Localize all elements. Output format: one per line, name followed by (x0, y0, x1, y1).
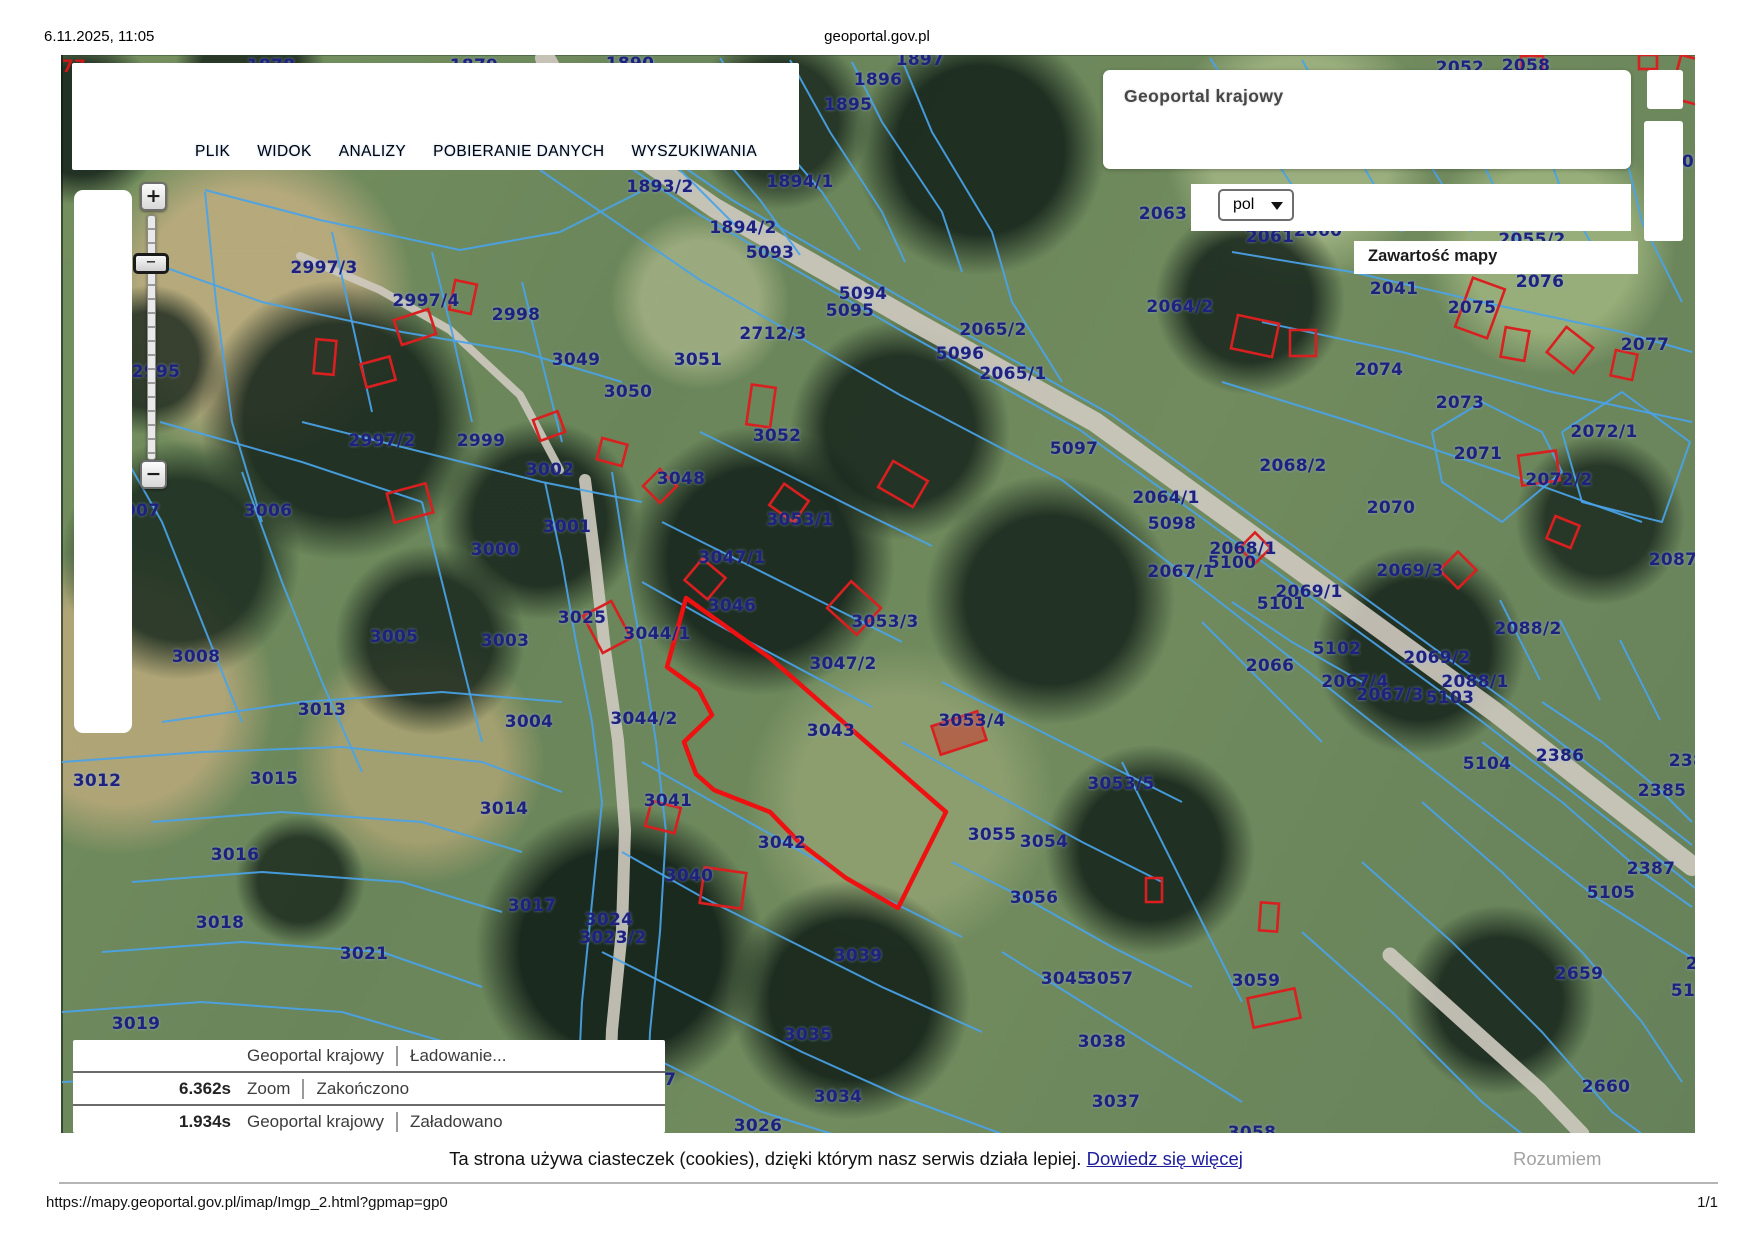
parcel-label: 3047/2 (809, 654, 876, 674)
parcel-label: 2068/2 (1259, 456, 1326, 476)
parcel-label: 5105 (1587, 883, 1636, 903)
parcel-label: 3026 (734, 1116, 783, 1133)
loading-row: 6.362s Zoom Zakończono (73, 1071, 665, 1104)
parcel-label: 5093 (746, 243, 795, 263)
parcel-label: 2072/2 (1525, 470, 1592, 490)
map-content-label: Zawartość mapy (1368, 247, 1638, 266)
parcel-label: 01 (1682, 152, 1695, 172)
parcel-label: 3044/1 (623, 624, 690, 644)
parcel-label: 3015 (250, 769, 299, 789)
parcel-label: 3047/1 (698, 548, 765, 568)
parcel-label: 2997/4 (392, 291, 459, 311)
parcel-label: 3053/3 (851, 612, 918, 632)
parcel-label: 5096 (936, 344, 985, 364)
parcel-label: 2077 (1621, 335, 1670, 355)
parcel-label: 3053/4 (938, 711, 1005, 731)
parcel-label: 3001 (543, 517, 592, 537)
parcel-label: 3016 (211, 845, 260, 865)
parcel-label: 3006 (244, 501, 293, 521)
parcel-label: 3038 (1078, 1032, 1127, 1052)
zoom-in-button[interactable]: + (140, 182, 167, 211)
parcel-label: 2069/3 (1376, 561, 1443, 581)
parcel-label: 1894/1 (766, 172, 833, 192)
parcel-label: 3049 (552, 350, 601, 370)
parcel-label: 3034 (814, 1087, 863, 1107)
parcel-label: 1893/2 (626, 177, 693, 197)
menu-item-analizy[interactable]: ANALIZY (339, 143, 406, 161)
parcel-label: 2067/1 (1147, 562, 1214, 582)
parcel-label: 2 (1686, 954, 1695, 974)
parcel-label: 2065/1 (979, 364, 1046, 384)
parcel-label: 2065/2 (959, 320, 1026, 340)
parcel-label: 5101 (1257, 594, 1306, 614)
parcel-label: 3035 (784, 1025, 833, 1045)
loading-time: 6.362s (73, 1079, 247, 1099)
parcel-label: 3051 (674, 350, 723, 370)
parcel-label: 2063 (1139, 204, 1188, 224)
parcel-label: 5103 (1426, 688, 1475, 708)
parcel-label: 3056 (1010, 888, 1059, 908)
parcel-label: 2076 (1516, 272, 1565, 292)
parcel-label: 3021 (340, 944, 389, 964)
parcel-label: 3058 (1228, 1123, 1277, 1133)
parcel-label: 2997/3 (290, 258, 357, 278)
parcel-label: 2066 (1246, 656, 1295, 676)
parcel-label: 3039 (834, 946, 883, 966)
parcel-label: 3019 (112, 1014, 161, 1034)
map-content-panel[interactable]: Zawartość mapy (1354, 241, 1638, 274)
parcel-label: 3057 (1085, 969, 1134, 989)
page-indicator: 1/1 (1697, 1194, 1718, 1211)
parcel-label: 2041 (1370, 279, 1419, 299)
parcel-label: 3004 (505, 712, 554, 732)
parcel-label: 3008 (172, 647, 221, 667)
menu-item-pobieranie-danych[interactable]: POBIERANIE DANYCH (433, 143, 604, 161)
parcel-label: 2087 (1649, 550, 1695, 570)
parcel-label: 5097 (1050, 439, 1099, 459)
parcel-label: 1896 (854, 70, 903, 90)
parcel-label: 3055 (968, 825, 1017, 845)
loading-source: Geoportal krajowy (247, 1046, 396, 1066)
map-canvas[interactable]: 18781879189077189618971895205220582997/3… (61, 55, 1695, 1133)
cookie-accept-button[interactable]: Rozumiem (1513, 1148, 1718, 1170)
loading-row: 1.934s Geoportal krajowy Załadowano (73, 1104, 665, 1133)
parcel-label: 3042 (758, 833, 807, 853)
parcel-label: 3023/2 (579, 928, 646, 948)
parcel-label: 2659 (1555, 964, 1604, 984)
parcel-label: 3050 (604, 382, 653, 402)
parcel-label: 2075 (1448, 298, 1497, 318)
parcel-label: 2997/2 (348, 431, 415, 451)
parcel-label: 2070 (1367, 498, 1416, 518)
printed-page-title: geoportal.gov.pl (0, 28, 1754, 45)
parcel-label: 2069/2 (1403, 648, 1470, 668)
parcel-label: 51 (1671, 981, 1695, 1001)
parcel-label: 3002 (526, 460, 575, 480)
parcel-label: 2088/2 (1494, 619, 1561, 639)
language-value: pol (1233, 196, 1254, 213)
zoom-slider-track[interactable] (147, 215, 156, 460)
parcel-label: 3052 (753, 426, 802, 446)
toolbar-box[interactable] (1647, 70, 1683, 109)
parcel-label: 3054 (1020, 832, 1069, 852)
parcel-label: 2064/1 (1132, 488, 1199, 508)
parcel-label: 3005 (370, 627, 419, 647)
cookie-banner: Ta strona używa ciasteczek (cookies), dz… (59, 1136, 1718, 1184)
parcel-label: 2071 (1454, 444, 1503, 464)
parcel-label: 1897 (896, 55, 945, 70)
parcel-label: 2073 (1436, 393, 1485, 413)
menu-panel: PLIK WIDOK ANALIZY POBIERANIE DANYCH WYS… (72, 63, 799, 170)
parcel-label: 3014 (480, 799, 529, 819)
parcel-label: 2067/3 (1356, 685, 1423, 705)
parcel-label: 3046 (708, 596, 757, 616)
parcel-label: 3037 (1092, 1092, 1141, 1112)
parcel-label: 2995 (132, 362, 181, 382)
loading-row: Geoportal krajowy Ładowanie... (73, 1040, 665, 1071)
loading-status: Ładowanie... (396, 1046, 506, 1066)
parcel-label: 5098 (1148, 514, 1197, 534)
parcel-label: 3059 (1232, 971, 1281, 991)
parcel-label: 3053/5 (1087, 774, 1154, 794)
parcel-label: 3024 (585, 910, 634, 930)
parcel-label: 3003 (481, 631, 530, 651)
parcel-label: 2385 (1638, 781, 1687, 801)
parcel-label: 2999 (457, 431, 506, 451)
parcel-label: 3000 (471, 540, 520, 560)
zoom-slider-handle[interactable]: − (133, 253, 169, 274)
parcel-label: 2660 (1582, 1077, 1631, 1097)
parcel-label: 3053/1 (766, 510, 833, 530)
parcel-label: 3025 (558, 608, 607, 628)
parcel-label: 1894/2 (709, 218, 776, 238)
parcel-label: 3041 (644, 791, 693, 811)
app-title-panel: Geoportal krajowy (1103, 70, 1631, 169)
loading-source: Geoportal krajowy (247, 1112, 396, 1132)
menu-bar: PLIK WIDOK ANALIZY POBIERANIE DANYCH WYS… (195, 143, 757, 161)
parcel-label: 5104 (1463, 754, 1512, 774)
parcel-label: 3012 (73, 771, 122, 791)
parcel-label: 2072/1 (1570, 422, 1637, 442)
parcel-label: 3045 (1041, 969, 1090, 989)
parcel-label: 5095 (826, 301, 875, 321)
app-title: Geoportal krajowy (1124, 86, 1631, 107)
loading-source: Zoom (247, 1079, 302, 1099)
parcel-label: 3018 (196, 913, 245, 933)
side-toolbar-box[interactable] (1644, 121, 1683, 241)
parcel-label: 2387 (1627, 859, 1676, 879)
cookie-learn-more-link[interactable]: Dowiedz się więcej (1087, 1148, 1243, 1169)
loading-status: Zakończono (302, 1079, 409, 1099)
cookie-message: Ta strona używa ciasteczek (cookies), dz… (59, 1148, 1513, 1170)
parcel-label: 5100 (1208, 553, 1257, 573)
footer-url: https://mapy.geoportal.gov.pl/imap/Imgp_… (46, 1194, 448, 1211)
chevron-down-icon (1271, 202, 1283, 210)
parcel-label: 238 (1669, 751, 1695, 771)
parcel-label: 2064/2 (1146, 297, 1213, 317)
menu-item-wyszukiwania[interactable]: WYSZUKIWANIA (631, 143, 757, 161)
parcel-label: 1895 (824, 95, 873, 115)
parcel-label: 3043 (807, 721, 856, 741)
parcel-label: 3017 (508, 896, 557, 916)
loading-time: 1.934s (73, 1112, 247, 1132)
parcel-label: 5102 (1313, 639, 1362, 659)
menu-item-plik[interactable]: PLIK (195, 143, 230, 161)
loading-status: Załadowano (396, 1112, 503, 1132)
language-select[interactable]: pol (1218, 189, 1294, 221)
zoom-out-button[interactable]: − (140, 460, 167, 489)
parcel-label: 2386 (1536, 746, 1585, 766)
loading-status-panel: Geoportal krajowy Ładowanie... 6.362s Zo… (73, 1040, 665, 1133)
parcel-label: 3044/2 (610, 709, 677, 729)
parcel-label: 2074 (1355, 360, 1404, 380)
left-tool-panel (74, 190, 132, 733)
parcel-label: 3013 (298, 700, 347, 720)
parcel-label: 3048 (657, 469, 706, 489)
parcel-label: 2998 (492, 305, 541, 325)
parcel-label: 3040 (665, 866, 714, 886)
menu-item-widok[interactable]: WIDOK (257, 143, 312, 161)
parcel-label: 2712/3 (739, 324, 806, 344)
